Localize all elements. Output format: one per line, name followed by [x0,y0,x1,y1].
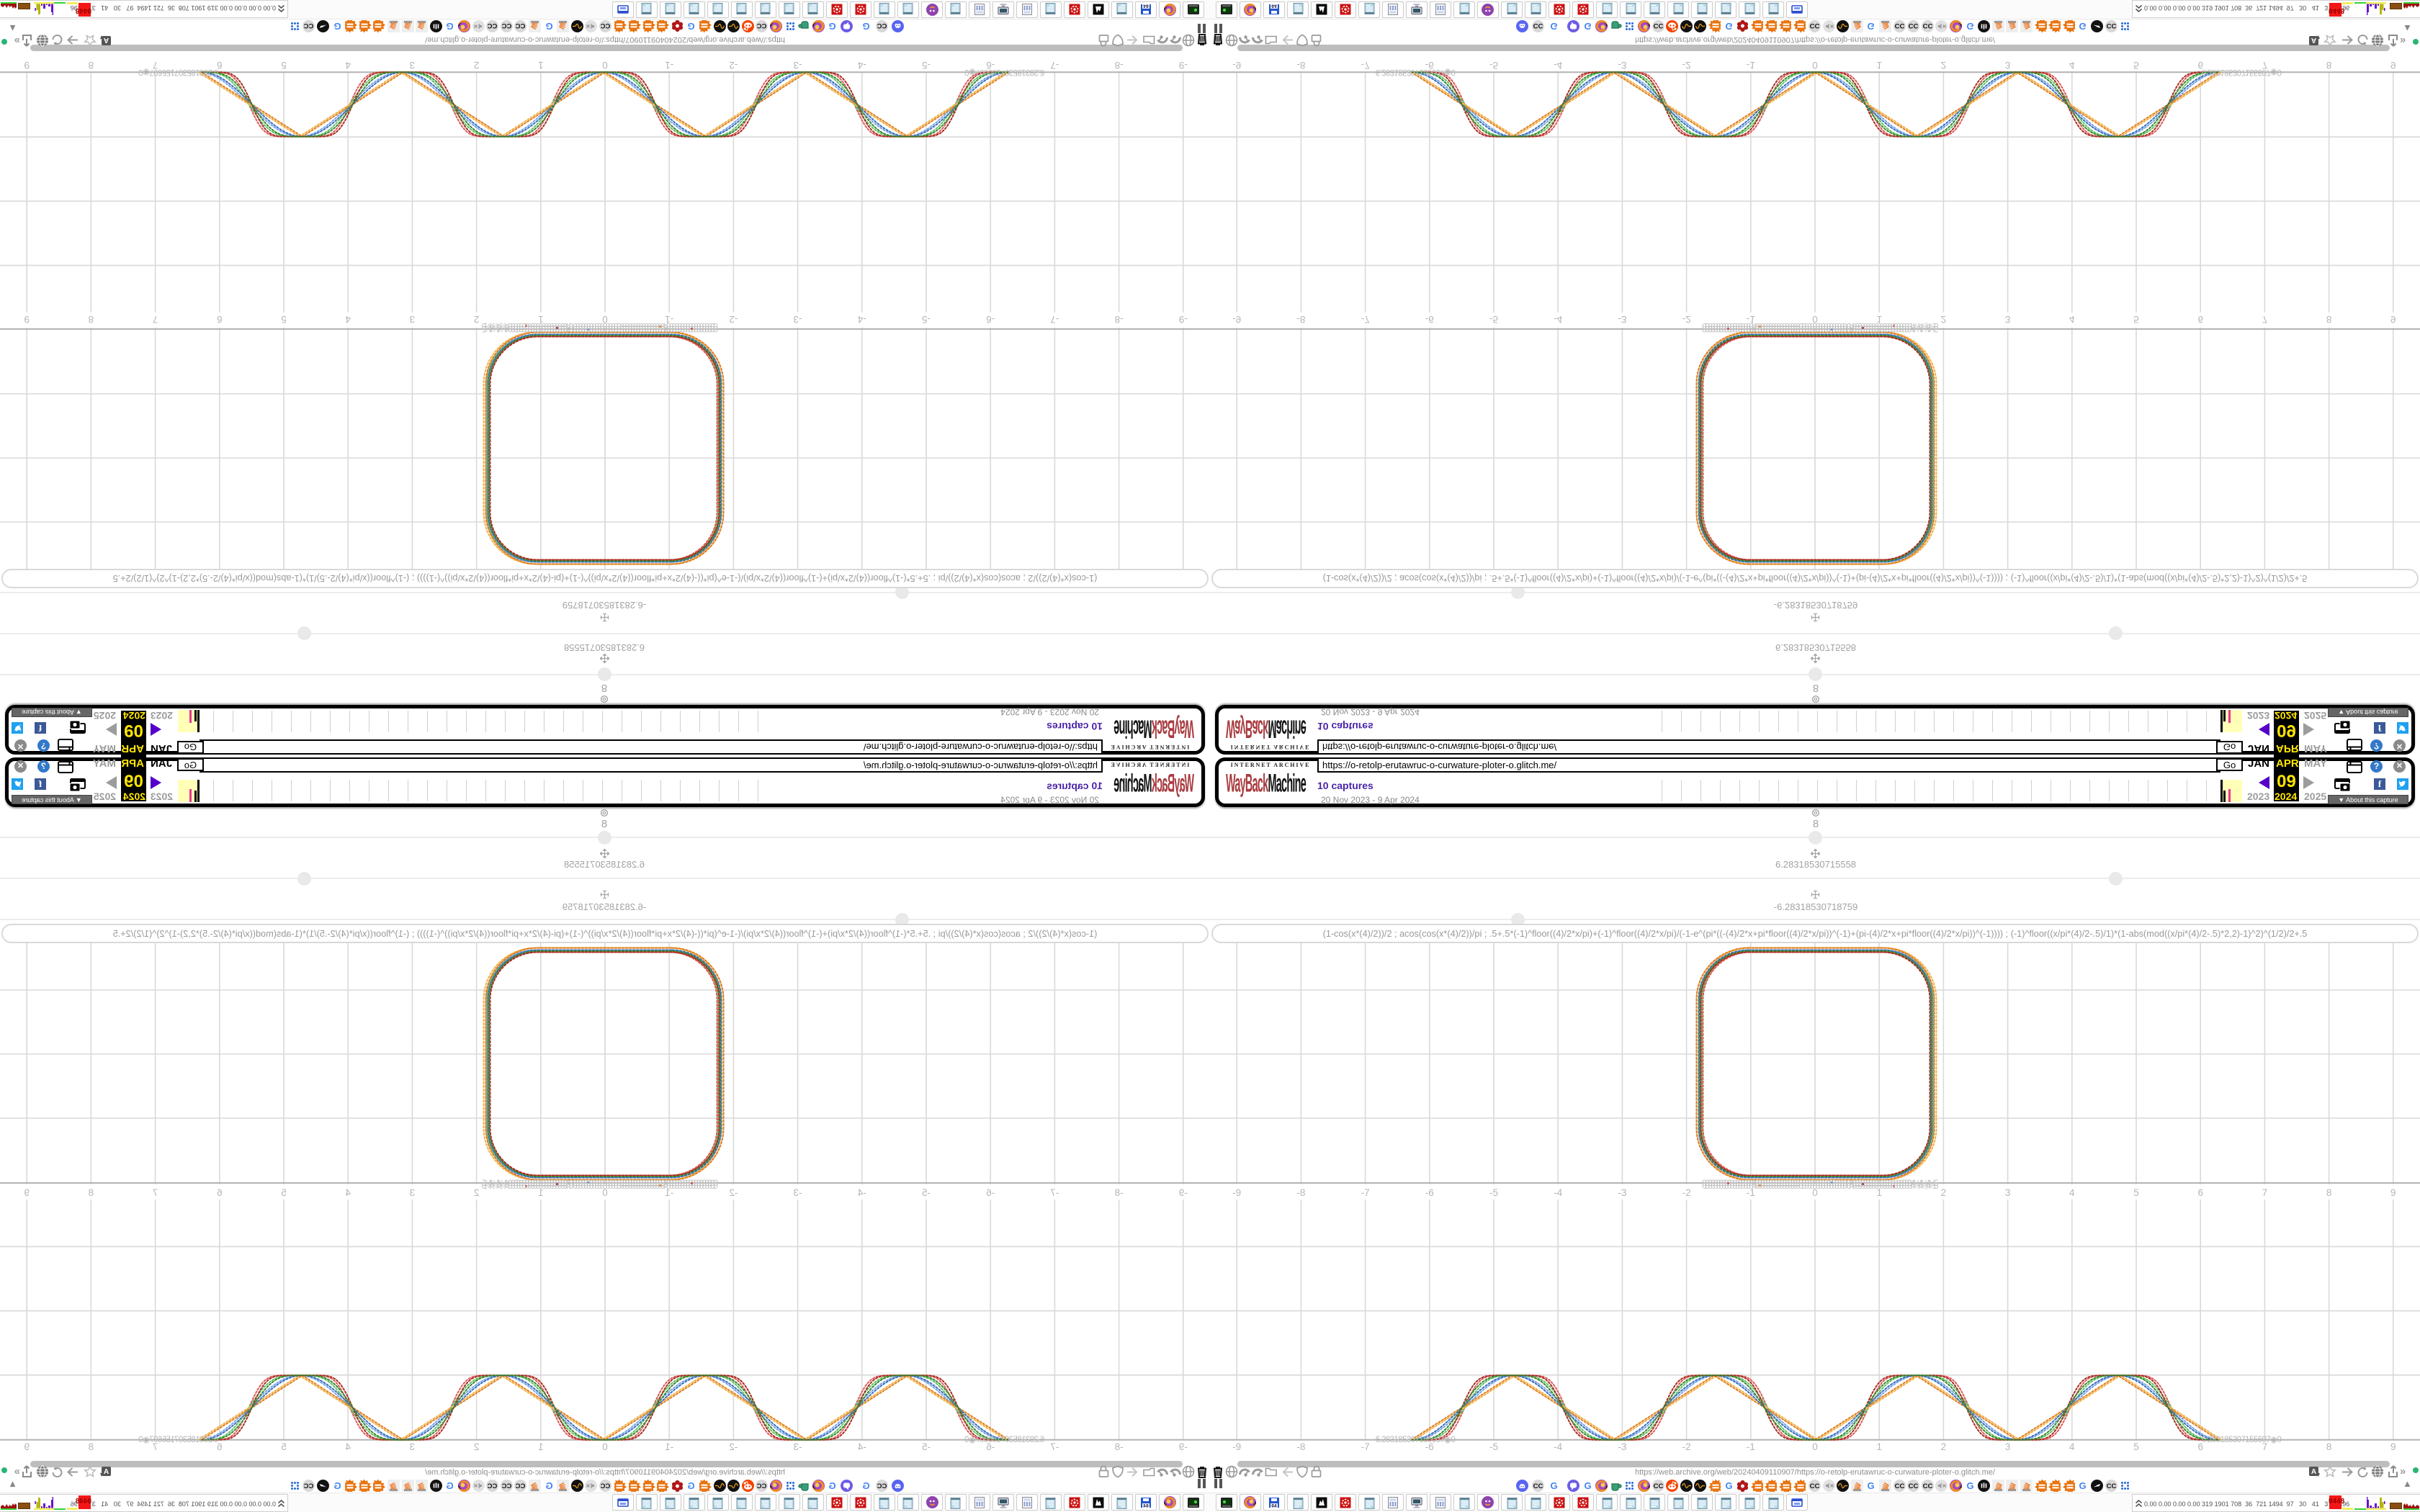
svg-text:6: 6 [2197,314,2203,325]
svg-text:3: 3 [410,1441,416,1452]
svg-text:-9: -9 [1179,314,1188,325]
svg-text:0.00000000000000000.4999999999: 0.00000000000000000.499999999999999990.0… [482,321,718,330]
svg-text:1: 1 [538,1441,544,1452]
svg-text:2: 2 [1941,60,1947,71]
svg-text:-9: -9 [1179,60,1188,71]
svg-text:-5: -5 [922,1441,931,1452]
svg-text:-4: -4 [1554,60,1562,71]
svg-text:2: 2 [1941,1187,1947,1198]
svg-text:-9: -9 [1232,314,1241,325]
svg-text:0: 0 [602,60,608,71]
svg-text:2: 2 [474,314,480,325]
svg-text:8: 8 [89,60,94,71]
svg-text:-4: -4 [857,1187,866,1198]
svg-text:3: 3 [2005,1187,2011,1198]
svg-text:-3: -3 [794,60,802,71]
svg-text:3: 3 [2005,1441,2011,1452]
svg-text:6.283185307155607◉0: 6.283185307155607◉0 [2202,68,2282,76]
svg-text:-8: -8 [1115,1187,1124,1198]
svg-text:4: 4 [2069,1187,2075,1198]
svg-text:-7: -7 [1050,314,1059,325]
svg-text:-9: -9 [1232,1187,1241,1198]
svg-text:2: 2 [474,60,480,71]
svg-text:4: 4 [2069,314,2075,325]
svg-text:6.283185307155607◉0: 6.283185307155607◉0 [139,68,219,76]
svg-text:-7: -7 [1050,1441,1059,1452]
svg-text:5: 5 [281,1441,287,1452]
svg-text:-8: -8 [1296,314,1305,325]
svg-text:4: 4 [2069,1441,2075,1452]
svg-text:-7: -7 [1050,60,1059,71]
svg-text:6: 6 [2197,1187,2203,1198]
svg-text:-1: -1 [665,60,673,71]
svg-text:8: 8 [89,1441,94,1452]
svg-text:5: 5 [281,60,287,71]
svg-text:-4: -4 [1554,314,1562,325]
svg-text:-7: -7 [1361,314,1370,325]
svg-text:-3: -3 [1618,1187,1626,1198]
svg-text:4: 4 [345,1441,351,1452]
svg-text:-4: -4 [857,60,866,71]
svg-text:-1: -1 [1747,60,1755,71]
svg-text:9: 9 [24,60,30,71]
svg-text:-2: -2 [729,1187,738,1198]
svg-text:6.283185307155607◉0: 6.283185307155607◉0 [1376,68,1456,76]
svg-text:-7: -7 [1361,1441,1370,1452]
svg-text:3: 3 [410,314,416,325]
svg-text:3: 3 [2005,60,2011,71]
svg-text:-7: -7 [1050,1187,1059,1198]
svg-text:6.283185307155607◉0: 6.283185307155607◉0 [2202,1436,2282,1444]
svg-text:-9: -9 [1232,1441,1241,1452]
svg-text:2: 2 [1941,314,1947,325]
svg-text:-3: -3 [794,314,802,325]
svg-text:8: 8 [2326,60,2332,71]
svg-text:-4: -4 [1554,1187,1562,1198]
svg-text:4: 4 [345,1187,351,1198]
svg-text:-3: -3 [1618,314,1626,325]
svg-text:6.283185307155607◉0: 6.283185307155607◉0 [965,1436,1045,1444]
svg-text:-2: -2 [1682,314,1691,325]
svg-text:7: 7 [2262,314,2268,325]
svg-text:7: 7 [153,1187,158,1198]
svg-text:1: 1 [1876,1441,1882,1452]
svg-text:9: 9 [2390,314,2396,325]
svg-text:-6: -6 [1425,314,1434,325]
svg-text:7: 7 [153,314,158,325]
svg-text:-2: -2 [1682,60,1691,71]
svg-text:0.00000000000000000.4999999999: 0.00000000000000000.499999999999999990.0… [1702,1182,1938,1191]
svg-text:6: 6 [217,314,223,325]
svg-text:-8: -8 [1115,314,1124,325]
svg-text:8: 8 [2326,314,2332,325]
svg-text:-9: -9 [1232,60,1241,71]
svg-text:-5: -5 [1489,1187,1498,1198]
svg-text:9: 9 [24,1187,30,1198]
svg-text:8: 8 [2326,1187,2332,1198]
svg-text:4: 4 [2069,60,2075,71]
svg-text:-5: -5 [1489,314,1498,325]
svg-text:0: 0 [602,1441,608,1452]
svg-text:-9: -9 [1179,1441,1188,1452]
svg-text:-2: -2 [1682,1441,1691,1452]
svg-text:0.00000000000000000.4999999999: 0.00000000000000000.499999999999999990.0… [482,1182,718,1191]
svg-text:3: 3 [410,1187,416,1198]
svg-text:1: 1 [1876,60,1882,71]
svg-text:5: 5 [2133,60,2139,71]
svg-text:-4: -4 [857,1441,866,1452]
svg-text:9: 9 [2390,1187,2396,1198]
svg-text:-5: -5 [922,314,931,325]
svg-text:-3: -3 [794,1441,802,1452]
svg-text:2: 2 [1941,1441,1947,1452]
svg-text:5: 5 [2133,1187,2139,1198]
svg-text:-7: -7 [1361,1187,1370,1198]
svg-text:-3: -3 [794,1187,802,1198]
svg-text:1: 1 [538,60,544,71]
svg-text:-9: -9 [1179,1187,1188,1198]
svg-text:-6: -6 [986,314,995,325]
svg-text:-4: -4 [1554,1441,1562,1452]
svg-text:-8: -8 [1296,1441,1305,1452]
svg-text:3: 3 [410,60,416,71]
svg-text:-2: -2 [729,60,738,71]
svg-text:6.283185307155607◉0: 6.283185307155607◉0 [965,68,1045,76]
svg-text:6.283185307155607◉0: 6.283185307155607◉0 [1376,1436,1456,1444]
svg-text:-1: -1 [665,1441,673,1452]
svg-text:5: 5 [281,1187,287,1198]
svg-text:6: 6 [217,1187,223,1198]
svg-text:0.00000000000000000.4999999999: 0.00000000000000000.499999999999999990.0… [1702,321,1938,330]
svg-text:2: 2 [474,1187,480,1198]
svg-text:5: 5 [2133,314,2139,325]
svg-text:-2: -2 [1682,1187,1691,1198]
svg-text:8: 8 [89,314,94,325]
svg-text:-5: -5 [1489,60,1498,71]
svg-text:-7: -7 [1361,60,1370,71]
svg-text:0: 0 [1812,1441,1818,1452]
svg-text:-8: -8 [1296,60,1305,71]
svg-text:5: 5 [2133,1441,2139,1452]
svg-text:7: 7 [2262,1187,2268,1198]
svg-text:4: 4 [345,314,351,325]
svg-text:9: 9 [24,314,30,325]
svg-text:-5: -5 [922,1187,931,1198]
svg-text:4: 4 [345,60,351,71]
svg-text:-8: -8 [1296,1187,1305,1198]
svg-text:-8: -8 [1115,1441,1124,1452]
svg-text:0: 0 [1812,60,1818,71]
svg-text:-2: -2 [729,1441,738,1452]
svg-text:8: 8 [89,1187,94,1198]
svg-text:2: 2 [474,1441,480,1452]
svg-text:5: 5 [281,314,287,325]
svg-text:-5: -5 [922,60,931,71]
svg-text:-5: -5 [1489,1441,1498,1452]
svg-text:-6: -6 [1425,1187,1434,1198]
svg-text:-3: -3 [1618,60,1626,71]
svg-text:-1: -1 [1747,1441,1755,1452]
svg-text:8: 8 [2326,1441,2332,1452]
svg-text:6.283185307155607◉0: 6.283185307155607◉0 [139,1436,219,1444]
svg-text:-6: -6 [986,1187,995,1198]
svg-text:9: 9 [24,1441,30,1452]
svg-text:-2: -2 [729,314,738,325]
svg-text:3: 3 [2005,314,2011,325]
svg-text:-8: -8 [1115,60,1124,71]
svg-text:9: 9 [2390,60,2396,71]
svg-text:-4: -4 [857,314,866,325]
svg-text:-3: -3 [1618,1441,1626,1452]
svg-text:9: 9 [2390,1441,2396,1452]
